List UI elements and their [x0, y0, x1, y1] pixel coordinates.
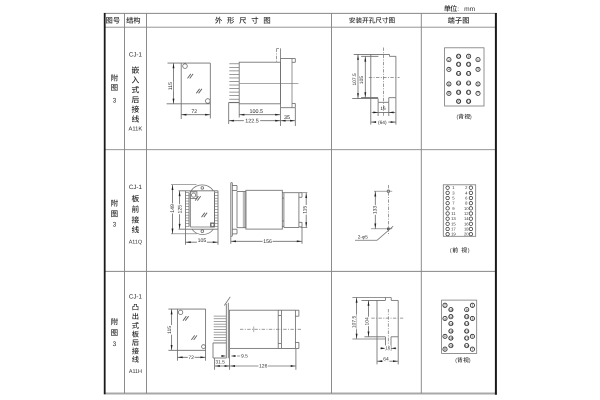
svg-text:19: 19	[451, 232, 456, 237]
svg-text:2-φ5: 2-φ5	[358, 235, 368, 241]
svg-text:16: 16	[380, 106, 386, 112]
svg-text:20: 20	[449, 344, 453, 348]
svg-text:4: 4	[444, 317, 446, 321]
svg-text:7: 7	[471, 347, 473, 351]
svg-text:19: 19	[465, 344, 469, 348]
svg-text:13: 13	[467, 72, 471, 76]
svg-text:(: (	[450, 248, 452, 254]
svg-text:(: (	[455, 358, 457, 364]
svg-text:14: 14	[449, 322, 453, 326]
svg-text:14: 14	[457, 72, 461, 76]
svg-text:122.5: 122.5	[245, 119, 259, 125]
svg-text:CJ-1: CJ-1	[129, 51, 143, 58]
svg-text::: :	[457, 6, 459, 13]
svg-text:mm: mm	[464, 6, 475, 13]
svg-text:9.5: 9.5	[241, 354, 248, 360]
svg-text:A11K: A11K	[129, 127, 143, 133]
svg-text:16: 16	[385, 345, 390, 350]
svg-text:6: 6	[444, 335, 446, 339]
svg-text:126: 126	[259, 364, 268, 370]
svg-text:156: 156	[263, 239, 272, 245]
svg-text:17: 17	[467, 91, 471, 95]
svg-text:(64): (64)	[378, 120, 387, 126]
svg-text:): )	[468, 248, 470, 254]
svg-text:107.5: 107.5	[352, 73, 358, 86]
svg-text:9: 9	[466, 308, 468, 312]
svg-text:125: 125	[178, 205, 184, 214]
svg-text:A11H: A11H	[129, 369, 142, 375]
svg-text:16: 16	[449, 329, 453, 333]
svg-text:7: 7	[477, 92, 479, 96]
svg-text:64: 64	[383, 357, 389, 363]
svg-text:149: 149	[170, 204, 176, 213]
svg-text:8: 8	[448, 92, 450, 96]
svg-text:A11Q: A11Q	[129, 239, 142, 245]
svg-text:100.5: 100.5	[250, 109, 264, 115]
svg-text:107.5: 107.5	[352, 316, 358, 329]
svg-text:72: 72	[188, 355, 194, 361]
svg-text:15: 15	[465, 329, 469, 333]
svg-text:10: 10	[449, 308, 453, 312]
svg-text:9: 9	[468, 55, 470, 59]
svg-text:35: 35	[284, 115, 290, 121]
svg-text:133: 133	[373, 206, 379, 215]
svg-text:): )	[470, 114, 472, 120]
svg-text:(: (	[457, 114, 459, 120]
svg-text:10: 10	[457, 55, 461, 59]
svg-text:12: 12	[449, 315, 453, 319]
svg-text:18: 18	[457, 91, 461, 95]
svg-text:2: 2	[448, 58, 450, 62]
svg-text:3: 3	[113, 221, 117, 228]
svg-text:3: 3	[471, 317, 473, 321]
svg-text:12: 12	[457, 63, 461, 67]
svg-text:13: 13	[465, 322, 469, 326]
svg-text:20: 20	[464, 232, 469, 237]
svg-text:6: 6	[448, 82, 450, 86]
svg-text:): )	[469, 358, 471, 364]
svg-text:115: 115	[168, 82, 174, 90]
svg-text:3: 3	[113, 341, 117, 348]
svg-text:11: 11	[467, 63, 471, 67]
svg-text:CJ-1: CJ-1	[129, 293, 143, 300]
svg-text:11: 11	[465, 315, 469, 319]
svg-text:20: 20	[457, 100, 461, 104]
svg-text:19: 19	[467, 100, 471, 104]
svg-text:18: 18	[449, 336, 453, 340]
svg-text:105: 105	[359, 76, 365, 84]
svg-text:16: 16	[457, 81, 461, 85]
svg-text:115: 115	[303, 206, 309, 214]
svg-text:5: 5	[471, 335, 473, 339]
svg-text:5: 5	[477, 82, 479, 86]
svg-text:8: 8	[444, 347, 446, 351]
svg-text:3: 3	[113, 98, 117, 105]
svg-text:2: 2	[444, 304, 446, 308]
svg-text:1: 1	[477, 58, 479, 62]
svg-text:31.5: 31.5	[216, 360, 226, 366]
svg-text:115: 115	[167, 326, 173, 334]
svg-text:72: 72	[191, 109, 197, 115]
svg-text:1: 1	[471, 304, 473, 308]
svg-text:17: 17	[465, 336, 469, 340]
svg-text:104: 104	[364, 317, 370, 325]
svg-text:CJ-1: CJ-1	[129, 184, 143, 191]
svg-text:4: 4	[448, 68, 450, 72]
svg-text:15: 15	[467, 81, 471, 85]
svg-text:3: 3	[477, 68, 479, 72]
svg-text:105: 105	[198, 238, 207, 244]
